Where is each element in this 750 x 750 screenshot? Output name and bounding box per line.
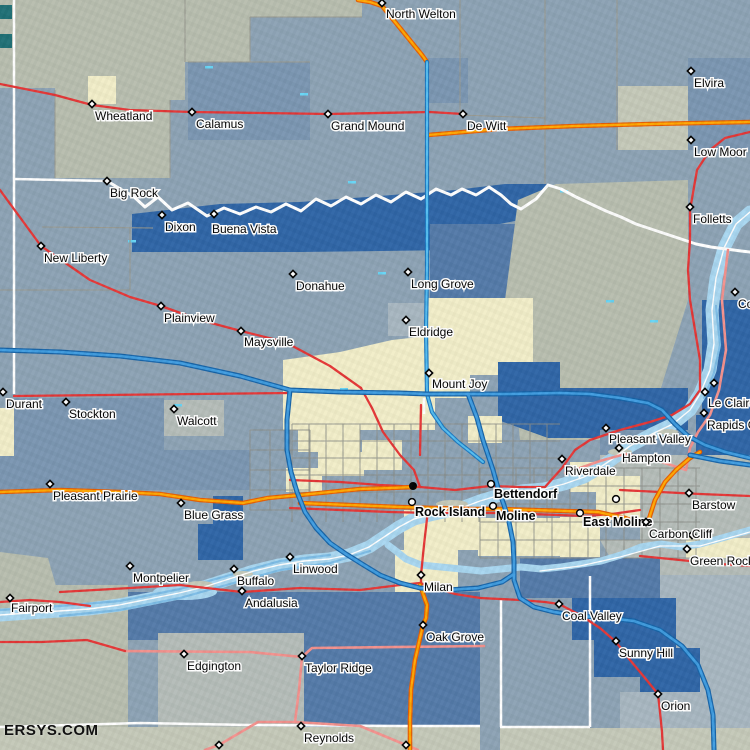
place-label: Wheatland <box>95 109 152 123</box>
place-label: Blue Grass <box>184 508 243 522</box>
place-label: Eldridge <box>409 325 453 339</box>
census-region <box>688 58 750 150</box>
place-label: Grand Mound <box>331 119 404 133</box>
place-label: Maysville <box>244 335 294 349</box>
place-label: Le Claire <box>708 396 750 410</box>
place-label: Green Rock <box>690 554 750 568</box>
place-label: Pleasant Prairie <box>53 489 138 503</box>
census-region <box>0 408 14 456</box>
place-label: Montpelier <box>133 571 189 585</box>
place-label: Barstow <box>692 498 736 512</box>
place-label: Mount Joy <box>432 377 487 391</box>
census-region <box>0 5 12 19</box>
census-region <box>0 450 250 490</box>
place-label: Low Moor <box>694 145 747 159</box>
place-label: Big Rock <box>110 186 159 200</box>
census-region <box>478 518 560 556</box>
place-label: Folletts <box>693 212 732 226</box>
census-region <box>304 640 480 727</box>
place-label: Riverdale <box>565 464 616 478</box>
place-label: Elvira <box>694 76 724 90</box>
pond <box>650 320 658 323</box>
census-region <box>428 58 468 103</box>
place-label: Long Grove <box>411 277 474 291</box>
place-label: Co <box>738 297 750 311</box>
place-label: Oak Grove <box>426 630 484 644</box>
major-city-dot-icon <box>409 482 417 490</box>
place-label: New Liberty <box>44 251 107 265</box>
place-label: Walcott <box>177 414 217 428</box>
place-label: Donahue <box>296 279 345 293</box>
place-label: North Welton <box>386 7 456 21</box>
place-label: Coal Valley <box>562 609 622 623</box>
pond <box>128 240 136 243</box>
pond <box>606 300 614 303</box>
census-region <box>0 34 12 48</box>
place-label: Edgington <box>187 659 241 673</box>
place-label: Taylor Ridge <box>305 661 372 675</box>
place-label: Pleasant Valley <box>609 432 691 446</box>
census-region <box>318 452 364 476</box>
pond <box>300 93 308 96</box>
place-label: Fairport <box>11 601 53 615</box>
census-region <box>362 440 402 470</box>
place-label: Bettendorf <box>494 487 558 501</box>
pond <box>378 272 386 275</box>
watermark: ERSYS.COM <box>4 722 99 739</box>
map-viewport: North WeltonElviraWheatlandCalamusGrand … <box>0 0 750 750</box>
place-label: Reynolds <box>304 731 354 745</box>
place-label: Durant <box>6 397 43 411</box>
place-label: Stockton <box>69 407 116 421</box>
pond <box>205 66 213 69</box>
census-region <box>158 633 304 727</box>
place-label: Hampton <box>622 451 671 465</box>
place-label: Moline <box>496 509 536 523</box>
place-label: Sunny Hill <box>619 646 673 660</box>
map-canvas[interactable]: North WeltonElviraWheatlandCalamusGrand … <box>0 0 750 750</box>
census-region <box>618 86 688 150</box>
place-label: Dixon <box>165 220 196 234</box>
place-label: Orion <box>661 699 690 713</box>
place-label: Carbon Cliff <box>649 527 713 541</box>
city-marker-icon <box>613 496 620 503</box>
place-label: Plainview <box>164 311 215 325</box>
place-label: Buena Vista <box>212 222 277 236</box>
place-label: Rapids City <box>707 418 750 432</box>
road-red <box>420 405 421 455</box>
place-label: Andalusia <box>245 596 298 610</box>
place-label: Calamus <box>196 117 243 131</box>
place-label: Milan <box>424 580 453 594</box>
place-label: Buffalo <box>237 574 274 588</box>
place-label: De Witt <box>467 119 507 133</box>
pond <box>348 181 356 184</box>
place-label: Rock Island <box>415 505 485 519</box>
place-label: Linwood <box>293 562 338 576</box>
